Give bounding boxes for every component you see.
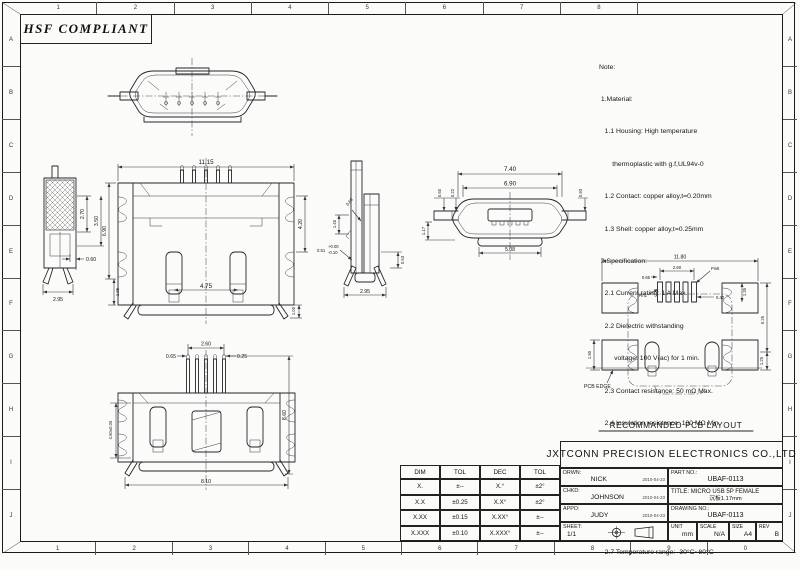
tol-cell: X.° bbox=[480, 479, 520, 495]
view-side-left: 2.70 3.50 0.60 2.95 bbox=[43, 166, 104, 303]
scale-value: N/A bbox=[714, 531, 725, 538]
dim-2-70: 2.70 bbox=[80, 209, 86, 219]
dim-6-90: 6.90 bbox=[102, 226, 108, 236]
pin-pads bbox=[658, 282, 697, 302]
dim-8-60: 8.60 bbox=[282, 410, 288, 420]
dim-1-95: 1.95 bbox=[115, 287, 120, 296]
dim-2-60: 2.60 bbox=[673, 265, 682, 270]
dim-11-15: 11.15 bbox=[198, 159, 214, 166]
view-front-exterior bbox=[108, 58, 278, 136]
tol-cell: ±-- bbox=[440, 479, 480, 495]
dim-6-90: 6.90 bbox=[504, 181, 517, 188]
drwn-name: NICK bbox=[591, 476, 607, 483]
tol-cell: ±2° bbox=[520, 495, 560, 511]
chkd-cell: CHKD: JOHNSON 2010-04-23 bbox=[560, 486, 668, 504]
size-cell: SIZE A4 bbox=[729, 522, 756, 541]
dim-2-95: 2.95 bbox=[360, 289, 370, 295]
dim-1-25: 1.25 bbox=[759, 356, 764, 365]
drwn-label: DRWN: bbox=[563, 470, 581, 476]
dim-2-95: 2.95 bbox=[53, 297, 63, 303]
view-front-mating: 7.40 6.90 0.60 0.22 0.93 1.17 5.08 bbox=[421, 166, 588, 260]
chkd-name: JOHNSON bbox=[591, 494, 624, 501]
dim-3-50: 3.50 bbox=[94, 216, 100, 226]
sheet-value: 1/1 bbox=[567, 531, 576, 538]
scale-label: SCALE bbox=[700, 524, 716, 530]
appo-cell: APPO: JUDY 2010-04-23 bbox=[560, 504, 668, 522]
dim-1-17: 1.17 bbox=[421, 226, 426, 235]
dim-0-60: 0.60 bbox=[86, 257, 96, 263]
pin1-label: Pin1 bbox=[639, 293, 648, 298]
tol-cell: ±-- bbox=[520, 526, 560, 542]
dim-tol-minus: -0.10 bbox=[328, 250, 338, 255]
part-no-value: UBAF-0113 bbox=[669, 476, 782, 483]
view-side-right: 1.45 0.60 0.51 +0.00 -0.10 0.63 2.95 bbox=[317, 161, 405, 298]
rev-label: REV bbox=[759, 524, 769, 530]
tol-cell: ±0.15 bbox=[440, 510, 480, 526]
appo-label: APPO: bbox=[563, 506, 579, 512]
dim-5-08: 5.08 bbox=[505, 247, 515, 253]
chkd-label: CHKD: bbox=[563, 488, 580, 494]
dim-1-45: 1.45 bbox=[332, 219, 337, 228]
dim-1-35: 1.35 bbox=[742, 287, 747, 296]
dim-0-25: 0.25 bbox=[237, 354, 247, 360]
pin-marks bbox=[163, 92, 221, 106]
dim-0-60: 0.60 bbox=[437, 188, 442, 197]
drwn-date: 2010-04-23 bbox=[643, 477, 665, 482]
view-top-main: 11.15 6.90 1.95 4.20 1.00 4.75 bbox=[102, 158, 308, 324]
company-name: JXTCONN PRECISION ELECTRONICS CO.,LTD bbox=[560, 441, 783, 468]
tol-cell: X.XXX° bbox=[480, 526, 520, 542]
tol-cell: ±0.10 bbox=[440, 526, 480, 542]
title-line2: 沉板1.17mm bbox=[669, 493, 782, 502]
title-block: JXTCONN PRECISION ELECTRONICS CO.,LTD DI… bbox=[400, 441, 783, 541]
view-pcb-layout: 11.80 2.60 0.65 Pin5 1.35 Pin1 0.40 5.25… bbox=[584, 255, 771, 432]
chkd-date: 2010-04-23 bbox=[643, 495, 665, 500]
dim-0-22: 0.22 bbox=[450, 188, 455, 197]
tol-cell: X.X bbox=[400, 495, 440, 511]
tol-header: TOL bbox=[520, 465, 560, 479]
rev-cell: REV B bbox=[756, 522, 783, 541]
dim-2-60: 2.60 bbox=[201, 342, 211, 348]
dim-4-75: 4.75 bbox=[200, 283, 213, 290]
view-bottom: 2.60 0.65 0.25 4.50±0.05 8.60 8.10 bbox=[108, 342, 295, 491]
size-value: A4 bbox=[744, 531, 752, 538]
tol-header: DEC bbox=[480, 465, 520, 479]
drawing-no-cell: DRAWING NO.: UBAF-0113 bbox=[668, 504, 783, 522]
tol-cell: X. bbox=[400, 479, 440, 495]
tol-cell: ±-- bbox=[520, 510, 560, 526]
tol-cell: ±0.25 bbox=[440, 495, 480, 511]
dim-1-90: 1.90 bbox=[587, 350, 592, 359]
dim-0-40: 0.40 bbox=[716, 295, 725, 300]
pin5-label: Pin5 bbox=[711, 266, 720, 271]
appo-date: 2010-04-23 bbox=[643, 513, 665, 518]
dim-0-51: 0.51 bbox=[317, 248, 326, 253]
tol-cell: X.X° bbox=[480, 495, 520, 511]
sheet-cell: SHEET: 1/1 bbox=[560, 522, 668, 541]
tol-cell: X.XXX bbox=[400, 526, 440, 542]
drawing-sheet: { "stamp": { "text": "HSF COMPLIANT" }, … bbox=[0, 0, 800, 557]
tol-header: TOL bbox=[440, 465, 480, 479]
sheet-label: SHEET: bbox=[563, 524, 582, 530]
unit-value: mm bbox=[682, 531, 693, 538]
pcb-edge-label: PCB EDGE bbox=[584, 384, 611, 390]
unit-cell: UNIT mm bbox=[668, 522, 697, 541]
title-cell: TITLE: MICRO USB 5P FEMALE 沉板1.17mm bbox=[668, 486, 783, 504]
part-no-cell: PART NO.: UBAF-0113 bbox=[668, 468, 783, 486]
dim-7-40: 7.40 bbox=[504, 166, 517, 173]
dim-0-60-leader: 0.60 bbox=[345, 197, 354, 207]
dim-5-25: 5.25 bbox=[760, 315, 765, 324]
dim-0-65: 0.65 bbox=[642, 275, 651, 280]
dim-tol-plus: +0.00 bbox=[328, 244, 339, 249]
dim-11-80: 11.80 bbox=[674, 255, 687, 261]
size-label: SIZE bbox=[732, 524, 743, 530]
drawing-no-value: UBAF-0113 bbox=[669, 512, 782, 519]
dim-0-93: 0.93 bbox=[578, 188, 583, 197]
pcb-layout-caption: RECOMMANDED PCB LAYOUT bbox=[610, 421, 743, 430]
unit-label: UNIT bbox=[671, 524, 683, 530]
scale-cell: SCALE N/A bbox=[697, 522, 729, 541]
dim-1-00: 1.00 bbox=[291, 306, 296, 315]
dim-4-50: 4.50±0.05 bbox=[108, 420, 113, 439]
projection-symbol-icon bbox=[608, 526, 664, 539]
dim-0-63: 0.63 bbox=[400, 255, 405, 264]
tol-cell: X.XX bbox=[400, 510, 440, 526]
appo-name: JUDY bbox=[591, 512, 609, 519]
rev-value: B bbox=[775, 531, 779, 538]
dim-0-65: 0.65 bbox=[166, 354, 176, 360]
dim-8-10: 8.10 bbox=[201, 479, 211, 485]
tol-cell: X.XX° bbox=[480, 510, 520, 526]
tol-cell: ±2° bbox=[520, 479, 560, 495]
drwn-cell: DRWN: NICK 2010-04-23 bbox=[560, 468, 668, 486]
tol-header: DIM bbox=[400, 465, 440, 479]
dim-4-20: 4.20 bbox=[298, 219, 304, 229]
